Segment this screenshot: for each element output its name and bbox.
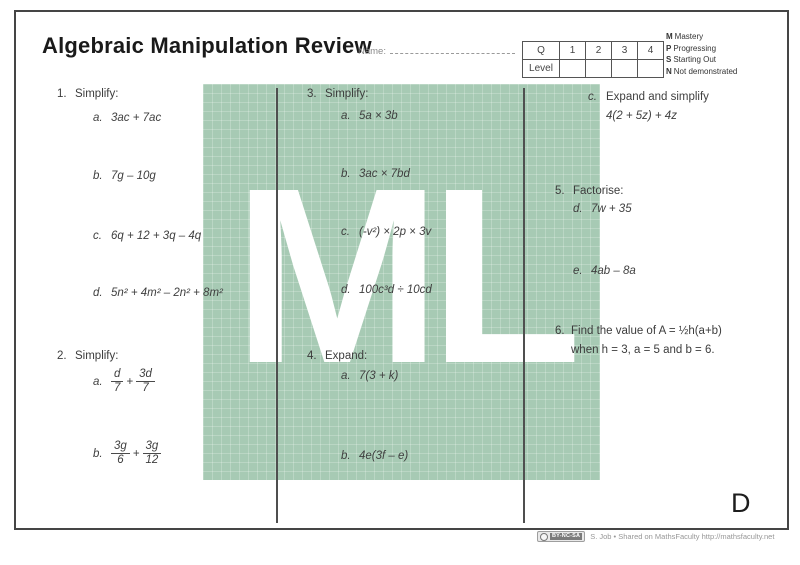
- question-1b: b.7g – 10g: [93, 170, 156, 182]
- question-4c-text: Expand and simplify 4(2 + 5z) + 4z: [606, 88, 709, 126]
- score-table-empty-cell: [638, 60, 664, 78]
- legend-item-progressing: PProgressing: [666, 43, 737, 55]
- fraction: 3g12: [143, 440, 162, 467]
- fraction: 3g6: [111, 440, 130, 467]
- question-3c: c.(-v²) × 2p × 3v: [341, 226, 431, 238]
- name-label: Name:: [358, 46, 386, 57]
- score-table-cell-4: 4: [638, 42, 664, 60]
- question-6: 6. Find the value of A = ½h(a+b) when h …: [555, 322, 722, 360]
- question-1d: d.5n² + 4m² – 2n² + 8m²: [93, 287, 223, 299]
- cc-license-badge: BY-NC-SA: [537, 531, 585, 542]
- name-field: Name:: [358, 44, 515, 57]
- question-3-heading: 3.Simplify:: [307, 88, 368, 100]
- credit-text: S. Job • Shared on MathsFaculty http://m…: [590, 532, 774, 541]
- score-table-empty-cell: [560, 60, 586, 78]
- question-6-text: Find the value of A = ½h(a+b) when h = 3…: [571, 322, 722, 360]
- question-5d: d.7w + 35: [573, 203, 632, 215]
- score-table-cell-2: 2: [586, 42, 612, 60]
- score-table-cell-3: 3: [612, 42, 638, 60]
- legend-item-mastery: MMastery: [666, 31, 737, 43]
- score-table-empty-cell: [612, 60, 638, 78]
- watermark-block: ML: [203, 84, 600, 480]
- name-line: [390, 44, 515, 54]
- version-letter: D: [731, 488, 751, 519]
- score-table-empty-cell: [586, 60, 612, 78]
- question-2b: b. 3g6 + 3g12: [93, 440, 161, 467]
- score-table-level-row: Level: [523, 60, 664, 78]
- license-label: BY-NC-SA: [550, 533, 582, 540]
- question-2-heading: 2.Simplify:: [57, 350, 118, 362]
- score-table-header-row: Q 1 2 3 4: [523, 42, 664, 60]
- watermark-text: ML: [233, 151, 570, 401]
- question-5-heading: 5.Factorise:: [555, 185, 624, 197]
- question-4b: b.4e(3f – e): [341, 450, 408, 462]
- column-divider-right: [523, 88, 525, 523]
- score-table: Q 1 2 3 4 Level: [522, 41, 664, 78]
- question-4a: a.7(3 + k): [341, 370, 398, 382]
- score-table-cell-level: Level: [523, 60, 560, 78]
- score-table-cell-1: 1: [560, 42, 586, 60]
- score-table-cell-q: Q: [523, 42, 560, 60]
- question-4c: c. Expand and simplify 4(2 + 5z) + 4z: [588, 88, 709, 126]
- question-3a: a.5a × 3b: [341, 110, 398, 122]
- question-1-heading: 1.Simplify:: [57, 88, 118, 100]
- cc-icon: [540, 533, 548, 541]
- legend-item-not-demonstrated: NNot demonstrated: [666, 66, 737, 78]
- question-4-heading: 4.Expand:: [307, 350, 367, 362]
- fraction: d7: [111, 368, 123, 395]
- fraction: 3d7: [136, 368, 155, 395]
- grading-legend: MMastery PProgressing SStarting Out NNot…: [666, 31, 737, 77]
- question-1a: a.3ac + 7ac: [93, 112, 161, 124]
- question-1c: c.6q + 12 + 3q – 4q: [93, 230, 201, 242]
- legend-item-starting-out: SStarting Out: [666, 54, 737, 66]
- question-2a: a. d7 + 3d7: [93, 368, 155, 395]
- question-3d: d.100c³d ÷ 10cd: [341, 284, 432, 296]
- footer: BY-NC-SA S. Job • Shared on MathsFaculty…: [537, 531, 774, 542]
- worksheet-title: Algebraic Manipulation Review: [42, 33, 372, 59]
- question-5e: e.4ab – 8a: [573, 265, 636, 277]
- column-divider-left: [276, 88, 278, 523]
- question-3b: b.3ac × 7bd: [341, 168, 410, 180]
